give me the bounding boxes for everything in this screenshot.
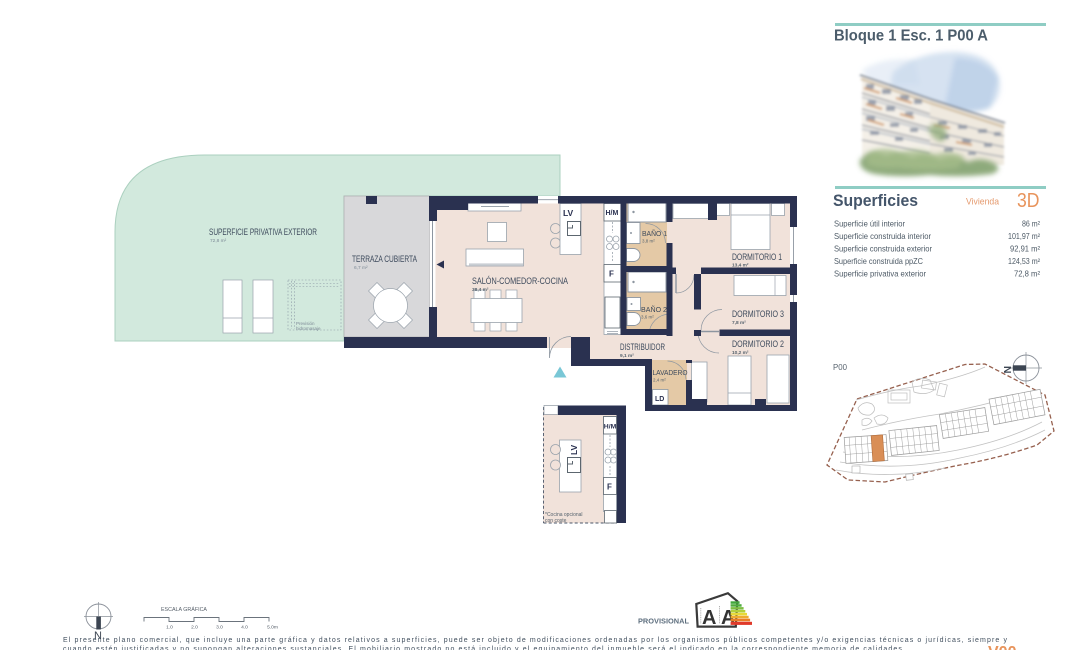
svg-text:Vivienda: Vivienda [966,197,1000,207]
svg-text:F: F [609,270,614,279]
svg-text:N: N [1002,366,1014,374]
svg-text:3D: 3D [1017,189,1040,212]
svg-text:Superficie construida ppZC: Superficie construida ppZC [834,257,923,266]
svg-text:Superficie útil interior: Superficie útil interior [834,220,905,229]
svg-text:Superficie privativa exterior: Superficie privativa exterior [834,270,926,279]
svg-text:DORMITORIO 2: DORMITORIO 2 [732,339,784,349]
svg-text:DORMITORIO 3: DORMITORIO 3 [732,309,784,319]
svg-text:BAÑO 2: BAÑO 2 [641,305,667,314]
svg-text:Superficie construida interior: Superficie construida interior [834,232,931,241]
svg-text:86 m²: 86 m² [1022,220,1040,229]
svg-text:BAÑO 1: BAÑO 1 [642,229,667,238]
svg-text:5.0m: 5.0m [267,625,278,631]
svg-text:SUPERFICIE PRIVATIVA EXTERIOR: SUPERFICIE PRIVATIVA EXTERIOR [209,227,317,237]
svg-text:LD: LD [655,396,664,403]
svg-text:cuando estén justificadas y no: cuando estén justificadas y no supongan … [63,646,905,650]
svg-text:92,91 m²: 92,91 m² [1010,245,1040,254]
svg-text:PROVISIONAL: PROVISIONAL [638,619,690,626]
svg-text:2.0: 2.0 [191,625,198,631]
svg-text:4.0: 4.0 [241,625,248,631]
svg-text:9,1 m²: 9,1 m² [620,353,634,359]
svg-text:1.0: 1.0 [166,625,173,631]
svg-text:LV: LV [569,444,579,455]
svg-text:124,53 m²: 124,53 m² [1008,257,1040,266]
svg-text:El presente plano comercial, q: El presente plano comercial, que incluye… [63,637,1008,644]
svg-text:P00: P00 [833,363,848,372]
svg-text:38,4 m²: 38,4 m² [472,287,489,293]
svg-text:2,4 m²: 2,4 m² [653,378,666,383]
svg-text:3.0: 3.0 [216,625,223,631]
svg-text:hidromasaje: hidromasaje [296,326,321,331]
svg-text:72,8 m²: 72,8 m² [1014,270,1040,279]
svg-text:Superficies: Superficies [833,192,918,210]
svg-text:V00: V00 [988,644,1017,650]
svg-text:SALÓN-COMEDOR-COCINA: SALÓN-COMEDOR-COCINA [472,276,568,286]
svg-text:101,97 m²: 101,97 m² [1008,232,1040,241]
svg-text:con coste: con coste [545,518,567,524]
svg-text:LV: LV [563,208,574,218]
svg-text:DISTRIBUIDOR: DISTRIBUIDOR [620,342,665,352]
svg-text:H/M: H/M [604,424,617,431]
svg-text:TERRAZA CUBIERTA: TERRAZA CUBIERTA [352,254,417,264]
svg-text:DORMITORIO 1: DORMITORIO 1 [732,252,782,262]
svg-text:ESCALA GRÁFICA: ESCALA GRÁFICA [161,606,208,613]
svg-text:Bloque 1 Esc. 1 P00 A: Bloque 1 Esc. 1 P00 A [834,28,988,45]
svg-text:H/M: H/M [606,210,619,217]
svg-text:72,8 m²: 72,8 m² [210,238,227,244]
svg-text:Superficie construida exterior: Superficie construida exterior [834,245,932,254]
svg-text:6,7 m²: 6,7 m² [354,265,368,271]
svg-text:7,8 m²: 7,8 m² [732,320,746,326]
svg-text:10,2 m²: 10,2 m² [732,350,749,356]
svg-text:3,8 m²: 3,8 m² [642,239,655,244]
svg-text:3,6 m²: 3,6 m² [641,315,654,320]
svg-text:F: F [607,483,612,492]
svg-text:A: A [702,607,716,629]
